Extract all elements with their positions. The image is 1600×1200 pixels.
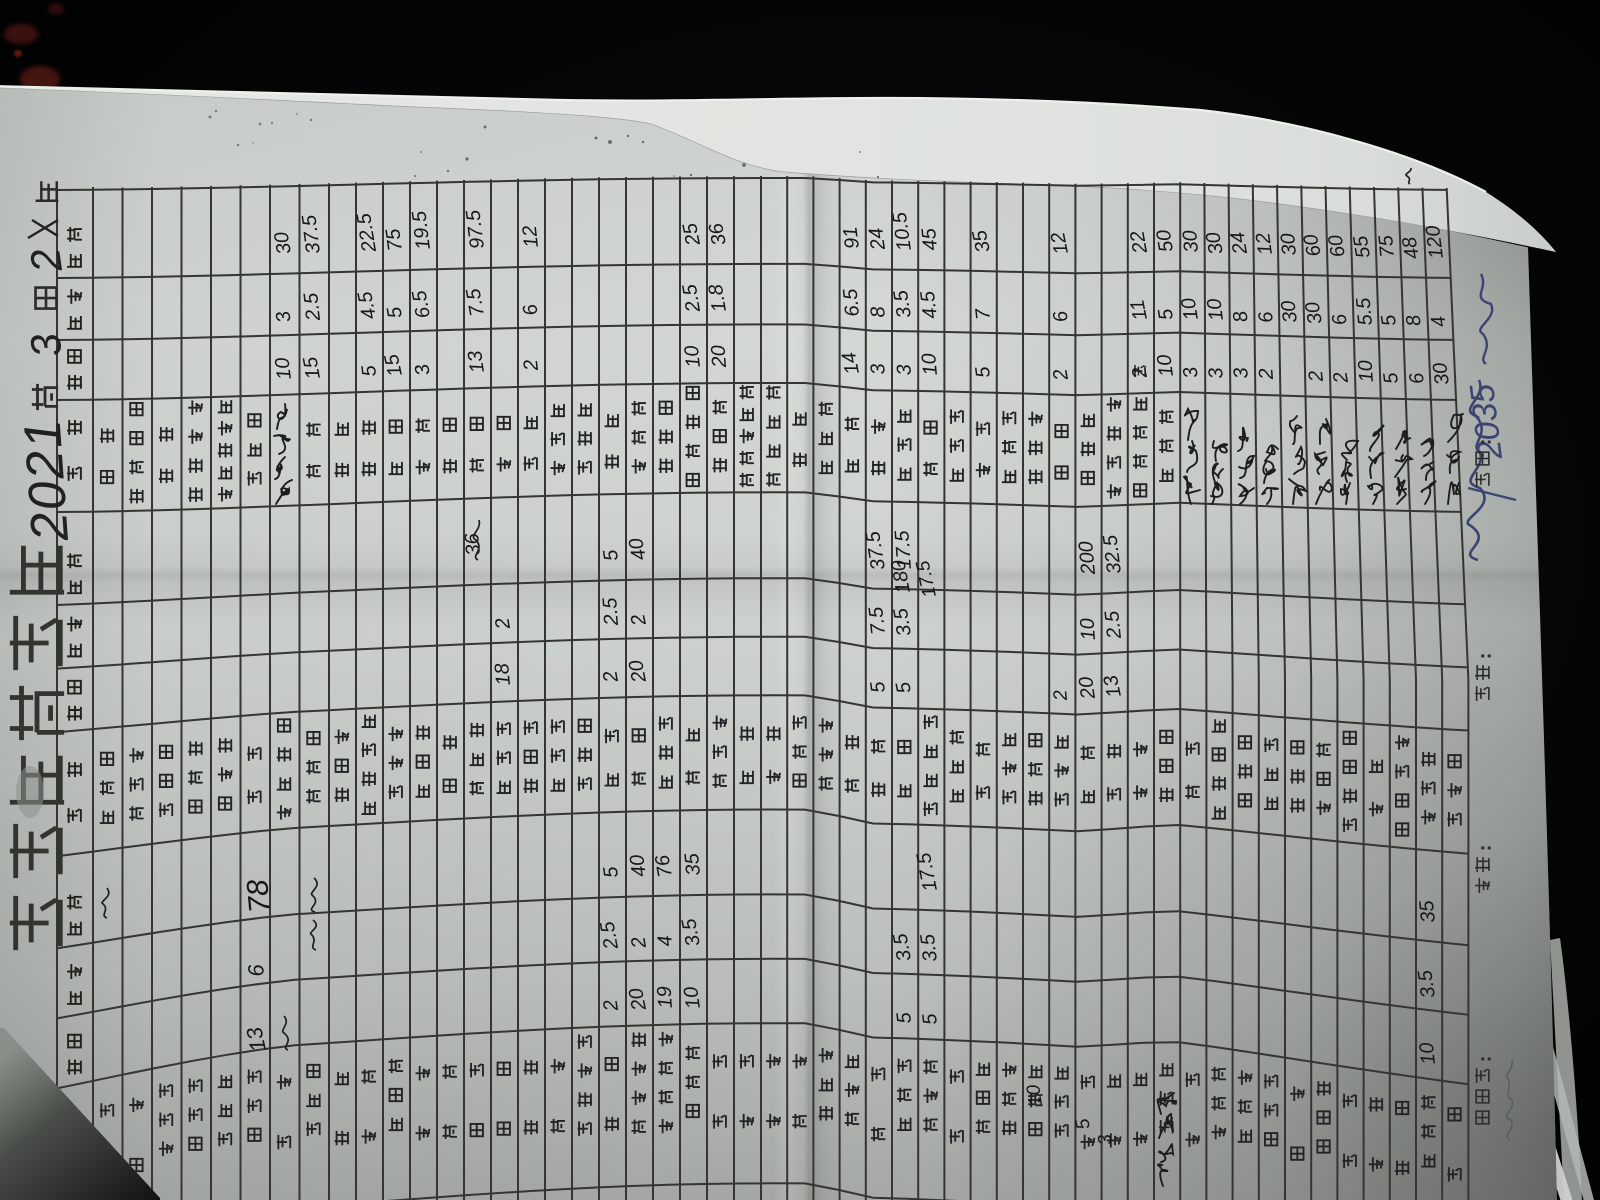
svg-text:50: 50 [1153,228,1178,253]
svg-text:1.8: 1.8 [705,283,731,314]
svg-text:91: 91 [839,225,864,250]
svg-text:10: 10 [1354,359,1377,383]
svg-text:40: 40 [626,853,651,878]
svg-text:12: 12 [519,224,543,248]
svg-text:10: 10 [1023,1083,1047,1107]
svg-text:8: 8 [867,305,890,318]
svg-text:20: 20 [625,986,651,1013]
svg-text::: : [1477,654,1494,658]
svg-text:60: 60 [1324,233,1350,259]
svg-text:120: 120 [1422,224,1448,260]
svg-text:10: 10 [680,985,705,1010]
svg-text:30: 30 [1301,300,1327,326]
svg-text:10: 10 [918,352,942,376]
svg-text:22: 22 [1126,229,1152,256]
svg-text:3: 3 [1230,366,1253,379]
svg-text:12: 12 [1047,230,1073,256]
svg-text:30: 30 [1277,232,1301,256]
svg-text:2: 2 [1050,689,1072,703]
svg-text::: : [1477,440,1494,444]
svg-text:6.5: 6.5 [840,287,864,317]
svg-text:200: 200 [1075,540,1100,576]
svg-text:45: 45 [918,227,942,252]
svg-text:20: 20 [707,344,731,369]
svg-text:2.5: 2.5 [599,596,623,627]
svg-text:2.5: 2.5 [679,282,705,315]
svg-text:10: 10 [681,344,705,368]
svg-text:2.5: 2.5 [300,291,325,323]
svg-text:10: 10 [1177,296,1203,322]
svg-text:2021: 2021 [13,416,80,544]
svg-text:4: 4 [654,934,677,947]
svg-text:75: 75 [1375,234,1399,259]
svg-text:20: 20 [625,658,651,685]
svg-text:10: 10 [1153,353,1178,378]
svg-text:3.5: 3.5 [890,606,916,638]
svg-text:3: 3 [893,364,916,377]
svg-text:3.5: 3.5 [917,932,942,963]
svg-text:7.5: 7.5 [865,605,890,636]
svg-text:30: 30 [1202,230,1228,256]
svg-text:2.5: 2.5 [1101,609,1126,641]
svg-text::: : [1477,846,1494,850]
svg-text:60: 60 [1300,232,1326,258]
svg-text:3.5: 3.5 [890,288,916,320]
svg-text:4.5: 4.5 [917,289,942,320]
svg-text:35: 35 [681,852,705,877]
svg-text::: : [1477,1057,1494,1061]
svg-text:18: 18 [491,662,515,686]
svg-text:75: 75 [382,226,407,252]
svg-text:30: 30 [1179,229,1203,253]
svg-text:55: 55 [1350,233,1375,259]
svg-text:3: 3 [867,362,890,375]
svg-text:10: 10 [1076,617,1099,641]
svg-text:35: 35 [1416,898,1440,923]
svg-text:10: 10 [1416,1041,1440,1065]
svg-text:20: 20 [1075,675,1100,701]
svg-text:30: 30 [1429,361,1454,386]
svg-text:12: 12 [1252,231,1277,256]
svg-text:30: 30 [270,230,296,256]
svg-text:2: 2 [1305,369,1328,383]
svg-text:19: 19 [653,985,676,1009]
svg-text:40: 40 [625,536,651,562]
svg-text:13: 13 [464,349,489,374]
svg-text:30: 30 [1277,299,1302,324]
svg-text:2: 2 [1255,368,1278,382]
svg-text:24: 24 [1227,230,1252,256]
svg-text:2: 2 [520,358,543,372]
svg-text:24: 24 [865,226,890,252]
svg-text:10: 10 [1203,297,1228,322]
svg-text:13: 13 [1100,673,1126,699]
svg-text:11: 11 [1126,298,1152,323]
svg-text:10: 10 [271,356,296,381]
svg-text:5.5: 5.5 [1353,296,1377,326]
svg-text:78: 78 [241,878,277,914]
svg-text:14: 14 [838,350,864,376]
svg-text:48: 48 [1398,235,1424,261]
svg-text:3.5: 3.5 [1414,968,1440,999]
